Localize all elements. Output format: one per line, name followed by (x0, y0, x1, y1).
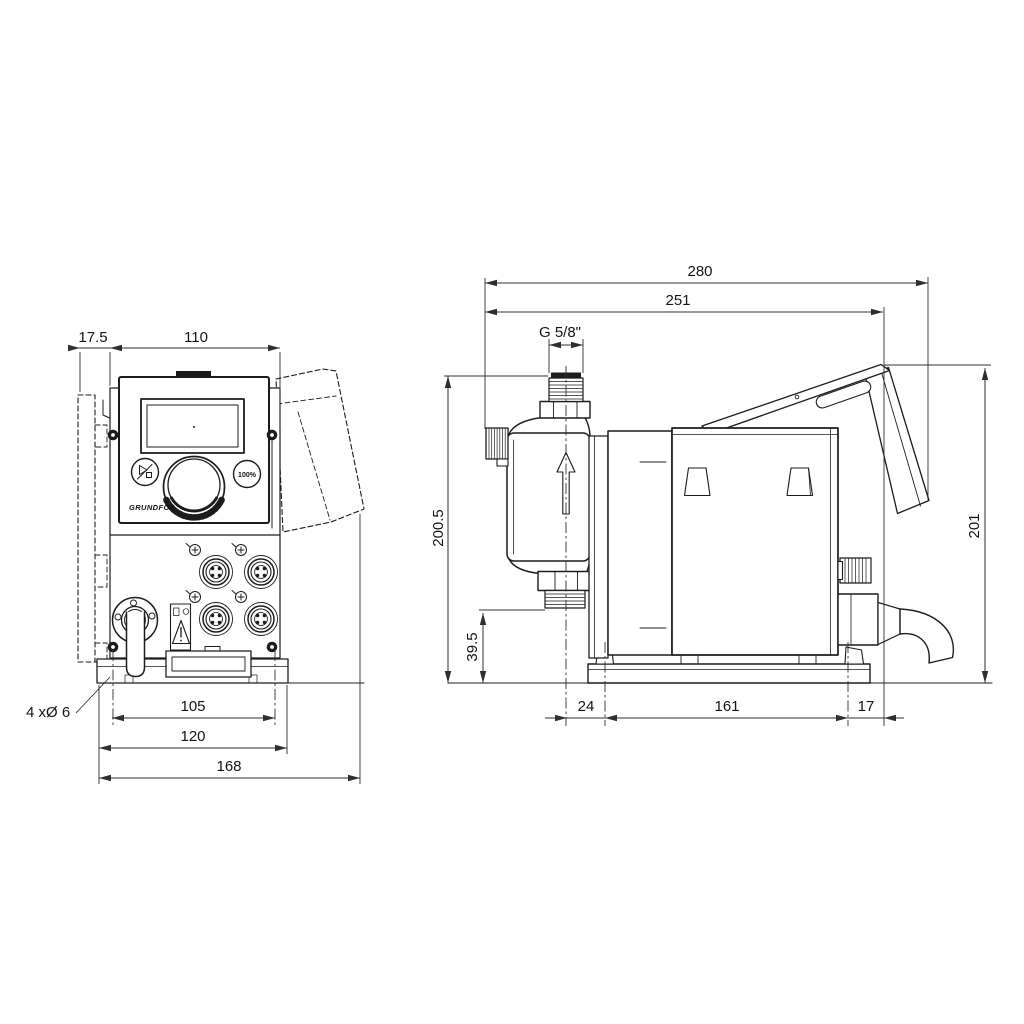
dim-label-168: 168 (216, 758, 241, 775)
dim-label-120: 120 (180, 728, 205, 745)
m12-connector (245, 556, 278, 589)
technical-drawing: 100% GRUNDFOS (0, 0, 1024, 1024)
dim-body-depth: 251 (485, 292, 883, 315)
front-view: 100% GRUNDFOS (26, 329, 364, 784)
vent-valve-knob (486, 428, 508, 466)
warning-label (171, 604, 191, 650)
power-cable (127, 612, 145, 677)
wall-bracket (78, 395, 112, 662)
dim-label-200-5: 200.5 (430, 509, 447, 547)
discharge-fitting (540, 373, 590, 419)
dim-thread: G 5/8" (539, 324, 583, 373)
dim-label-201: 201 (966, 513, 983, 538)
dim-label-24: 24 (578, 698, 595, 715)
dim-label-17: 17 (858, 698, 875, 715)
rear-connections (838, 558, 953, 663)
dim-label-161: 161 (714, 698, 739, 715)
screw-icon (267, 430, 278, 441)
dim-overall-depth: 280 (485, 263, 928, 286)
screw-icon (267, 642, 278, 653)
top-tab (176, 371, 211, 378)
dim-label-280: 280 (687, 263, 712, 280)
mains-cable (900, 609, 953, 663)
percent-button-label: 100% (238, 472, 257, 479)
dim-label-105: 105 (180, 698, 205, 715)
m12-connector (200, 556, 233, 589)
m12-connector (200, 603, 233, 636)
dim-label-17-5: 17.5 (78, 329, 107, 346)
screw-icon (108, 430, 119, 441)
suction-fitting (538, 572, 592, 609)
threaded-stud (838, 558, 871, 583)
dosing-head (486, 373, 592, 609)
dim-label-110: 110 (184, 329, 208, 346)
holes-note-label: 4 xØ 6 (26, 704, 70, 721)
open-cover-dashed (276, 369, 364, 532)
dim-footprint: 24 161 17 (545, 698, 904, 721)
side-view: 280 251 G 5/8" (430, 263, 992, 726)
control-panel: 100% GRUNDFOS (119, 371, 269, 523)
m12-connector (245, 603, 278, 636)
dim-label-thread: G 5/8" (539, 324, 581, 341)
dim-valve-height: 39.5 (464, 610, 545, 683)
brand-logo: GRUNDFOS (129, 503, 175, 512)
housing-side (589, 428, 838, 664)
din-clip (166, 647, 251, 678)
dim-label-251: 251 (665, 292, 690, 309)
drawing-canvas: 100% GRUNDFOS (0, 0, 1024, 1024)
dim-label-39-5: 39.5 (464, 632, 481, 661)
